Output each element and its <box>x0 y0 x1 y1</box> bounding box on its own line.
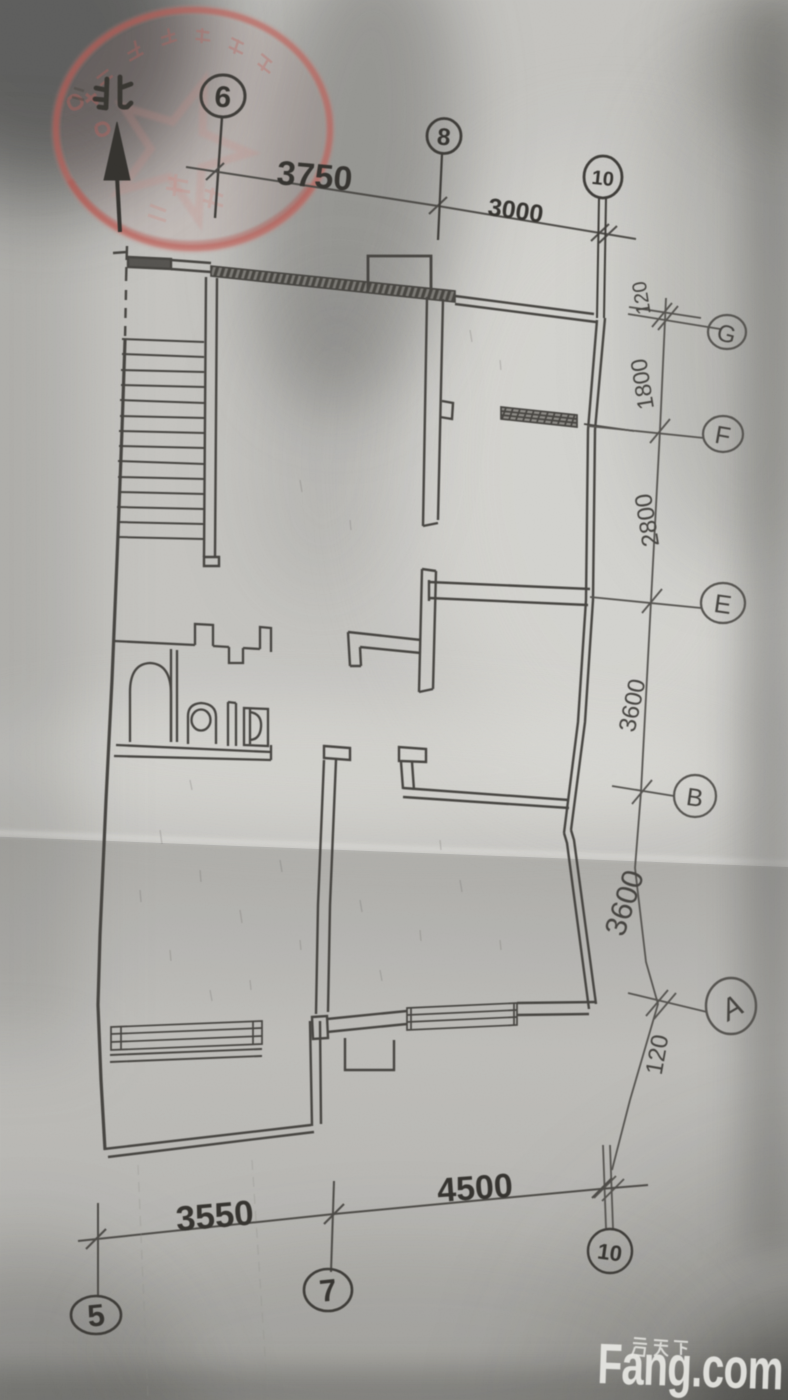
svg-text:Fang.com: Fang.com <box>597 1332 785 1400</box>
